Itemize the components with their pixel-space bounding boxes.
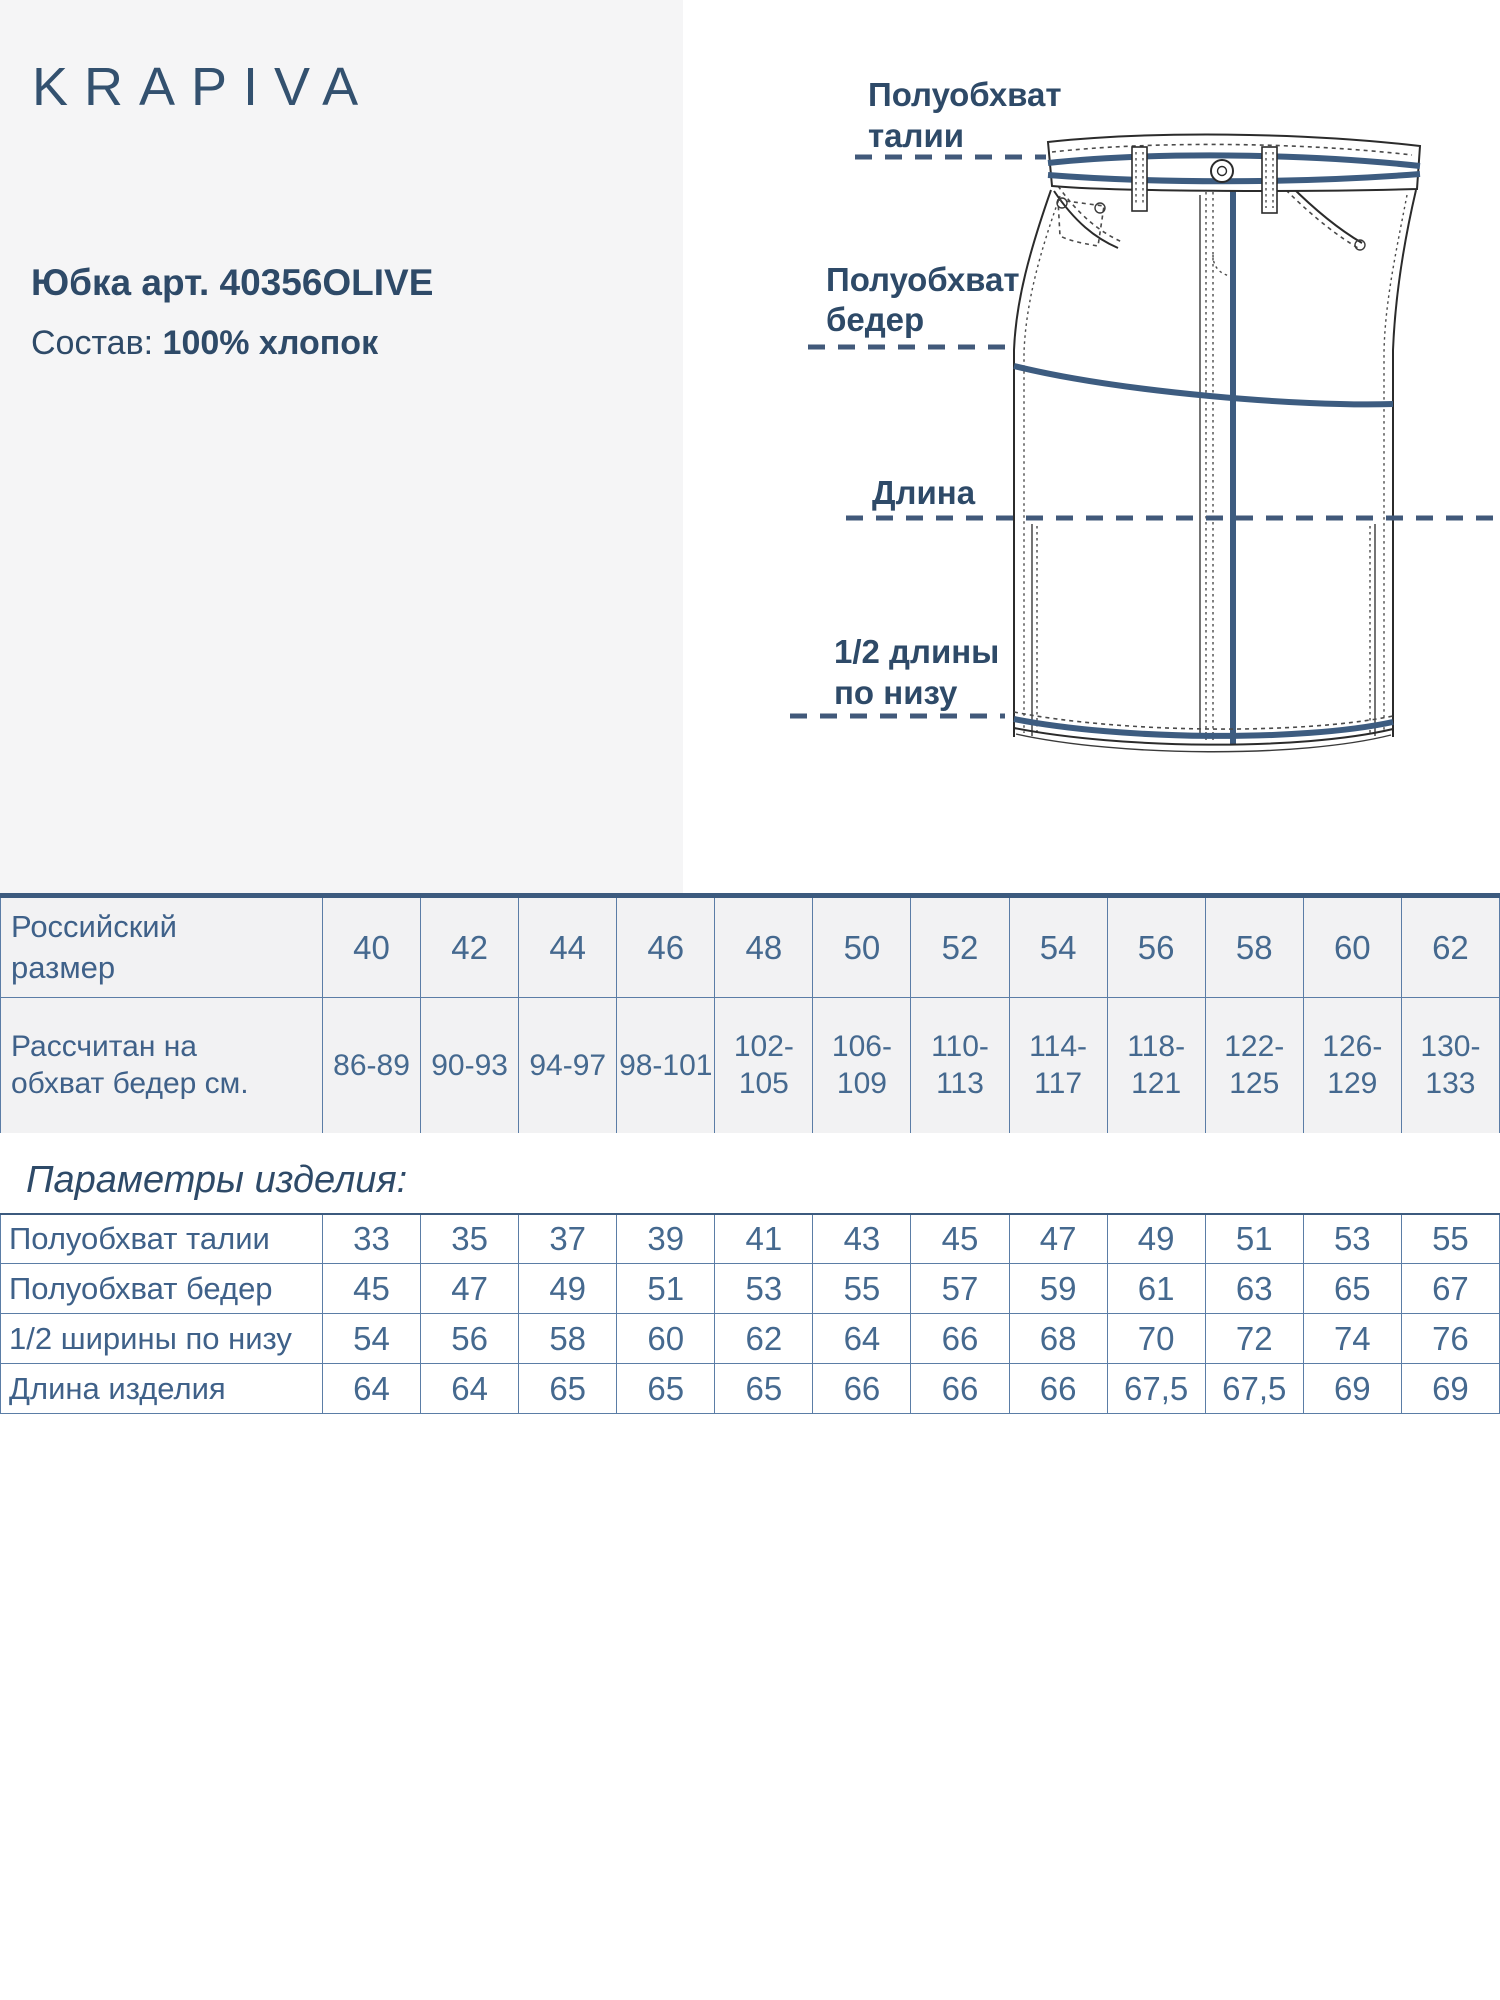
left-pocket-opening: [1054, 191, 1118, 248]
hip-range-cell: 94-97: [519, 998, 617, 1133]
hip-range-row: Рассчитан на обхват бедер см. 86-89 90-9…: [1, 998, 1500, 1133]
hem-label-line1: 1/2 длины: [834, 633, 999, 670]
param-row-label: 1/2 ширины по низу: [1, 1314, 323, 1364]
param-cell: 64: [323, 1364, 421, 1414]
hip-range-cell: 122- 125: [1205, 998, 1303, 1133]
size-row-header: Российский размер: [1, 896, 323, 998]
param-cell: 62: [715, 1314, 813, 1364]
param-cell: 72: [1205, 1314, 1303, 1364]
param-cell: 49: [1107, 1214, 1205, 1264]
param-cell: 53: [1303, 1214, 1401, 1264]
size-cell: 60: [1303, 896, 1401, 998]
param-cell: 55: [813, 1264, 911, 1314]
right-side-stitching: [1384, 195, 1407, 733]
param-cell: 47: [1009, 1214, 1107, 1264]
size-cell: 50: [813, 896, 911, 998]
param-cell: 65: [715, 1364, 813, 1414]
right-pocket-stitching: [1286, 190, 1358, 248]
param-row-bottom-width: 1/2 ширины по низу 54 56 58 60 62 64 66 …: [1, 1314, 1500, 1364]
hip-range-cell: 110- 113: [911, 998, 1009, 1133]
button: [1211, 160, 1233, 182]
fly-j-stitch: [1213, 255, 1230, 276]
param-cell: 37: [519, 1214, 617, 1264]
hip-range-cell: 126- 129: [1303, 998, 1401, 1133]
param-cell: 66: [911, 1314, 1009, 1364]
hip-range-cell: 86-89: [323, 998, 421, 1133]
param-cell: 65: [617, 1364, 715, 1414]
param-cell: 45: [911, 1214, 1009, 1264]
param-cell: 66: [813, 1364, 911, 1414]
param-cell: 55: [1401, 1214, 1499, 1264]
param-row-hip: Полуобхват бедер 45 47 49 51 53 55 57 59…: [1, 1264, 1500, 1314]
param-row-label: Полуобхват бедер: [1, 1264, 323, 1314]
param-cell: 63: [1205, 1264, 1303, 1314]
param-cell: 56: [421, 1314, 519, 1364]
hip-blue-line: [1014, 366, 1393, 404]
top-section: KRAPIVA Юбка арт. 40356OLIVE Состав: 100…: [0, 0, 1500, 893]
hip-range-cell: 102- 105: [715, 998, 813, 1133]
param-cell: 69: [1303, 1364, 1401, 1414]
right-side-seam: [1393, 190, 1416, 737]
param-row-waist: Полуобхват талии 33 35 37 39 41 43 45 47…: [1, 1214, 1500, 1264]
size-cell: 40: [323, 896, 421, 998]
left-pocket-stitching: [1058, 186, 1122, 242]
hip-range-cell: 114- 117: [1009, 998, 1107, 1133]
param-cell: 67,5: [1205, 1364, 1303, 1414]
param-cell: 45: [323, 1264, 421, 1314]
param-cell: 39: [617, 1214, 715, 1264]
param-cell: 74: [1303, 1314, 1401, 1364]
composition-label: Состав:: [31, 324, 153, 362]
hip-range-cell: 118- 121: [1107, 998, 1205, 1133]
param-cell: 65: [1303, 1264, 1401, 1314]
param-cell: 47: [421, 1264, 519, 1314]
hip-range-cell: 90-93: [421, 998, 519, 1133]
param-cell: 67,5: [1107, 1364, 1205, 1414]
param-cell: 51: [1205, 1214, 1303, 1264]
hip-range-cell: 98-101: [617, 998, 715, 1133]
param-cell: 61: [1107, 1264, 1205, 1314]
param-cell: 57: [911, 1264, 1009, 1314]
size-cell: 54: [1009, 896, 1107, 998]
waist-label-line1: Полуобхват: [868, 76, 1062, 113]
size-cell: 62: [1401, 896, 1499, 998]
product-title: Юбка арт. 40356OLIVE: [31, 262, 433, 304]
param-cell: 69: [1401, 1364, 1499, 1414]
param-cell: 35: [421, 1214, 519, 1264]
brand-panel: KRAPIVA Юбка арт. 40356OLIVE Состав: 100…: [0, 0, 683, 893]
param-cell: 64: [813, 1314, 911, 1364]
hip-label-line2: бедер: [826, 301, 924, 338]
size-cell: 48: [715, 896, 813, 998]
size-cell: 44: [519, 896, 617, 998]
params-table: Полуобхват талии 33 35 37 39 41 43 45 47…: [0, 1213, 1500, 1415]
param-cell: 51: [617, 1264, 715, 1314]
param-cell: 59: [1009, 1264, 1107, 1314]
brand-logo: KRAPIVA: [32, 56, 374, 118]
param-cell: 33: [323, 1214, 421, 1264]
param-cell: 70: [1107, 1314, 1205, 1364]
size-cell: 52: [911, 896, 1009, 998]
param-row-label: Длина изделия: [1, 1364, 323, 1414]
size-cell: 42: [421, 896, 519, 998]
param-cell: 66: [911, 1364, 1009, 1414]
param-cell: 68: [1009, 1314, 1107, 1364]
param-cell: 53: [715, 1264, 813, 1314]
belt-loop-right: [1262, 147, 1277, 213]
param-cell: 76: [1401, 1314, 1499, 1364]
param-cell: 41: [715, 1214, 813, 1264]
size-cell: 56: [1107, 896, 1205, 998]
param-cell: 60: [617, 1314, 715, 1364]
hip-range-cell: 106- 109: [813, 998, 911, 1133]
hem-label-line2: по низу: [834, 674, 958, 711]
russian-size-row: Российский размер 40 42 44 46 48 50 52 5…: [1, 896, 1500, 998]
product-composition: Состав: 100% хлопок: [31, 324, 378, 363]
param-cell: 65: [519, 1364, 617, 1414]
skirt-technical-drawing: Полуобхват талии Полуобхват бедер Длина …: [683, 0, 1500, 888]
params-section-title: Параметры изделия:: [26, 1159, 1500, 1207]
param-cell: 54: [323, 1314, 421, 1364]
size-cell: 46: [617, 896, 715, 998]
hip-range-row-header: Рассчитан на обхват бедер см.: [1, 998, 323, 1133]
right-pocket-opening: [1290, 185, 1362, 243]
left-side-stitching: [1024, 196, 1060, 733]
param-row-label: Полуобхват талии: [1, 1214, 323, 1264]
length-label: Длина: [872, 474, 976, 511]
skirt-body: [1014, 135, 1420, 752]
param-cell: 66: [1009, 1364, 1107, 1414]
hip-range-cell: 130- 133: [1401, 998, 1499, 1133]
composition-value: 100% хлопок: [163, 324, 379, 362]
param-cell: 58: [519, 1314, 617, 1364]
size-table: Российский размер 40 42 44 46 48 50 52 5…: [0, 893, 1500, 1133]
param-cell: 67: [1401, 1264, 1499, 1314]
waist-label-line2: талии: [868, 117, 964, 154]
hem-blue-line: [1014, 719, 1393, 736]
size-cell: 58: [1205, 896, 1303, 998]
belt-loop-left: [1132, 147, 1147, 211]
param-row-length: Длина изделия 64 64 65 65 65 66 66 66 67…: [1, 1364, 1500, 1414]
param-cell: 64: [421, 1364, 519, 1414]
hip-label-line1: Полуобхват: [826, 261, 1020, 298]
param-cell: 49: [519, 1264, 617, 1314]
param-cell: 43: [813, 1214, 911, 1264]
